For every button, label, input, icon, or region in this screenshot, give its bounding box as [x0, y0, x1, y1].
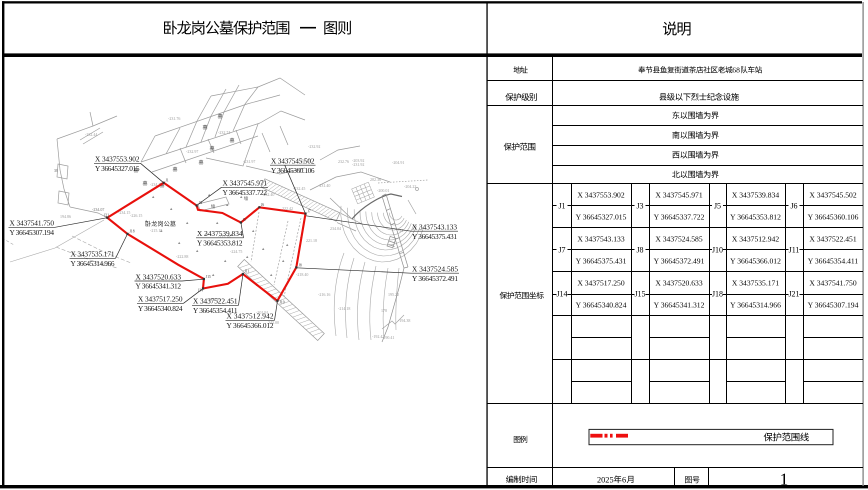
svg-text:-194.38: -194.38: [398, 318, 410, 323]
svg-text:-234.07: -234.07: [92, 207, 104, 212]
svg-text:Y 36645360.106: Y 36645360.106: [271, 166, 315, 175]
svg-text:X 3437545.502: X 3437545.502: [809, 190, 856, 199]
svg-text:Y 36645341.312: Y 36645341.312: [136, 282, 182, 291]
svg-text:X 3437545.502: X 3437545.502: [271, 157, 315, 166]
svg-text:J11: J11: [245, 270, 250, 274]
svg-text:J5: J5: [243, 218, 246, 222]
svg-text:-231.76: -231.76: [168, 116, 180, 121]
svg-text:Y 36645354.411: Y 36645354.411: [193, 306, 238, 315]
svg-text:202.36: 202.36: [370, 177, 381, 182]
svg-text:J5: J5: [714, 202, 721, 211]
svg-text:X 3437543.133: X 3437543.133: [412, 223, 457, 232]
svg-text:J15: J15: [634, 290, 645, 299]
svg-text:2025: 2025: [597, 475, 614, 484]
svg-text:Y 36645375.431: Y 36645375.431: [412, 232, 457, 241]
svg-text:X 3437541.750: X 3437541.750: [809, 279, 856, 288]
svg-text:Y 36645340.824: Y 36645340.824: [576, 301, 627, 310]
svg-text:-44: -44: [398, 228, 403, 233]
svg-text:X 3437517.250: X 3437517.250: [577, 279, 624, 288]
svg-text:J10: J10: [712, 246, 723, 255]
svg-text:J8: J8: [636, 246, 643, 255]
svg-text:X 3437524.585: X 3437524.585: [655, 235, 702, 244]
svg-text:X 3437535.171: X 3437535.171: [732, 279, 779, 288]
svg-text:X 3437522.451: X 3437522.451: [809, 235, 856, 244]
svg-text:-226.15: -226.15: [130, 213, 142, 218]
svg-text:-218.40: -218.40: [296, 272, 308, 277]
svg-text:X 3437520.633: X 3437520.633: [136, 272, 182, 281]
svg-text:-204.22: -204.22: [404, 184, 416, 189]
svg-text:X 3437543.133: X 3437543.133: [577, 235, 624, 244]
svg-text:J8: J8: [299, 264, 302, 268]
svg-text:-215.15: -215.15: [150, 228, 162, 233]
svg-text:X 3437539.834: X 3437539.834: [732, 190, 779, 199]
svg-text:178: 178: [381, 308, 387, 313]
svg-text:Y 36645375.431: Y 36645375.431: [576, 257, 627, 266]
svg-text:J7: J7: [558, 246, 565, 255]
svg-text:Y 36645360.106: Y 36645360.106: [808, 213, 859, 222]
svg-text:X 3437524.585: X 3437524.585: [412, 265, 458, 274]
svg-text:Y 36645307.194: Y 36645307.194: [10, 228, 55, 237]
svg-text:X 3437545.971: X 3437545.971: [655, 190, 702, 199]
svg-text:X 3437522.451: X 3437522.451: [193, 297, 238, 306]
svg-text:68: 68: [732, 66, 740, 75]
svg-text:Y 36645340.824: Y 36645340.824: [138, 304, 183, 313]
svg-text:X 3437535.171: X 3437535.171: [71, 250, 115, 259]
svg-text:X 3437520.633: X 3437520.633: [655, 279, 702, 288]
svg-text:Y 36645307.194: Y 36645307.194: [808, 301, 859, 310]
svg-text:J11: J11: [789, 246, 800, 255]
svg-text:X 3437541.750: X 3437541.750: [10, 219, 55, 228]
svg-text:J18: J18: [712, 290, 723, 299]
svg-text:X 3437539.834: X 3437539.834: [197, 229, 243, 238]
svg-text:X 3437545.971: X 3437545.971: [223, 179, 268, 188]
svg-text:6: 6: [622, 475, 626, 484]
svg-text:Y 36645372.491: Y 36645372.491: [412, 274, 458, 283]
svg-text:232.76: 232.76: [338, 159, 349, 164]
svg-text:J6: J6: [261, 203, 264, 207]
svg-text:J14: J14: [556, 290, 567, 299]
svg-text:-190.41: -190.41: [382, 335, 394, 340]
svg-text:Y 36645372.491: Y 36645372.491: [654, 257, 705, 266]
svg-text:Y 36645314.966: Y 36645314.966: [730, 301, 781, 310]
svg-text:J15: J15: [206, 275, 211, 279]
svg-text:X 3437517.250: X 3437517.250: [138, 295, 183, 304]
svg-text:J21: J21: [788, 290, 799, 299]
svg-text:221.18: 221.18: [306, 238, 317, 243]
svg-text:38: 38: [54, 168, 58, 173]
svg-text:-232.44: -232.44: [85, 132, 97, 137]
svg-text:-224.75: -224.75: [230, 249, 242, 254]
svg-text:Y 36645354.411: Y 36645354.411: [808, 257, 859, 266]
svg-text:Y 36645353.812: Y 36645353.812: [730, 213, 781, 222]
svg-text:Y 36645314.966: Y 36645314.966: [71, 259, 115, 268]
svg-text:Y 36645337.722: Y 36645337.722: [654, 213, 705, 222]
svg-text:-232.97: -232.97: [186, 149, 198, 154]
svg-text:-204.91: -204.91: [392, 160, 404, 165]
svg-text:Y 36645327.015: Y 36645327.015: [576, 213, 627, 222]
svg-text:J7: J7: [308, 210, 311, 214]
svg-text:-200.01: -200.01: [377, 188, 389, 193]
svg-text:J21: J21: [104, 214, 109, 218]
svg-text:X 3437553.902: X 3437553.902: [95, 155, 140, 164]
svg-text:-231.40: -231.40: [318, 183, 330, 188]
svg-text:Y 36645353.812: Y 36645353.812: [197, 238, 243, 247]
svg-text:-222.88: -222.88: [176, 254, 188, 259]
svg-text:X 3437512.942: X 3437512.942: [732, 235, 779, 244]
svg-text:194.86: 194.86: [60, 214, 71, 219]
svg-text:-231.97: -231.97: [243, 159, 255, 164]
svg-text:J1: J1: [166, 179, 169, 183]
svg-text:-232.92: -232.92: [308, 144, 320, 149]
svg-text:J1: J1: [558, 202, 565, 211]
svg-text:Y 36645327.015: Y 36645327.015: [95, 164, 140, 173]
svg-text:Y 36645366.012: Y 36645366.012: [730, 257, 781, 266]
svg-text:Y 36645341.312: Y 36645341.312: [654, 301, 705, 310]
svg-text:Y 36645366.012: Y 36645366.012: [227, 321, 274, 330]
svg-text:J6: J6: [790, 202, 797, 211]
svg-text:X 3437553.902: X 3437553.902: [577, 190, 624, 199]
svg-text:J10: J10: [280, 301, 285, 305]
svg-text:195.22: 195.22: [388, 292, 399, 297]
svg-text:J18: J18: [130, 230, 135, 234]
svg-text:234.04: 234.04: [330, 226, 341, 231]
svg-text:-214.18: -214.18: [338, 306, 350, 311]
svg-text:Y 36645337.722: Y 36645337.722: [223, 188, 268, 197]
svg-text:J3: J3: [636, 202, 643, 211]
svg-text:-232.74: -232.74: [218, 130, 230, 135]
svg-text:-203.92: -203.92: [352, 158, 364, 163]
svg-text:-216.16: -216.16: [318, 292, 330, 297]
